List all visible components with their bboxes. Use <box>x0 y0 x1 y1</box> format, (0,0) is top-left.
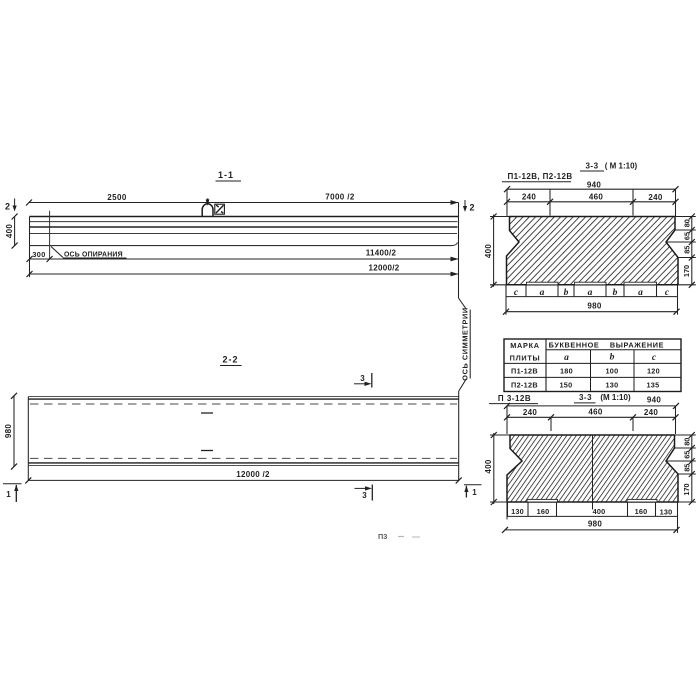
svg-text:80: 80 <box>682 219 691 227</box>
svg-text:240: 240 <box>648 193 662 202</box>
svg-text:2500: 2500 <box>107 193 127 202</box>
svg-text:160: 160 <box>537 507 550 516</box>
svg-text:2: 2 <box>5 202 10 212</box>
svg-text:a: a <box>638 288 643 298</box>
svg-text:2-2: 2-2 <box>222 355 238 365</box>
svg-text:П2-12В: П2-12В <box>511 381 538 390</box>
svg-text:180: 180 <box>560 366 573 375</box>
svg-text:100: 100 <box>605 367 618 376</box>
svg-text:12000 /2: 12000 /2 <box>236 470 270 479</box>
svg-text:1-1: 1-1 <box>218 170 234 180</box>
svg-text:a: a <box>588 288 593 298</box>
svg-text:ВЫРАЖЕНИЕ: ВЫРАЖЕНИЕ <box>610 341 664 350</box>
svg-text:85: 85 <box>682 464 691 472</box>
svg-text:1: 1 <box>6 490 11 499</box>
svg-text:2: 2 <box>469 203 474 213</box>
svg-text:3: 3 <box>362 491 367 500</box>
svg-text:80: 80 <box>682 438 691 446</box>
svg-text:11400/2: 11400/2 <box>366 249 397 258</box>
svg-text:ПЛИТЫ: ПЛИТЫ <box>510 353 541 362</box>
svg-text:a: a <box>540 288 545 298</box>
svg-text:b: b <box>610 352 615 362</box>
svg-text:b: b <box>564 288 569 298</box>
svg-text:240: 240 <box>644 408 658 417</box>
svg-text:980: 980 <box>587 302 601 311</box>
svg-text:400: 400 <box>484 244 493 258</box>
svg-text:940: 940 <box>647 396 661 405</box>
svg-text:a: a <box>564 353 569 363</box>
svg-text:МАРКА: МАРКА <box>510 341 539 350</box>
svg-text:400: 400 <box>5 224 14 238</box>
svg-text:940: 940 <box>587 181 601 190</box>
svg-text:БУКВЕННОЕ: БУКВЕННОЕ <box>549 341 600 350</box>
svg-text:(М 1:10): (М 1:10) <box>600 393 631 402</box>
svg-text:400: 400 <box>593 507 606 516</box>
svg-text:170: 170 <box>682 483 691 495</box>
svg-text:135: 135 <box>646 381 659 390</box>
svg-text:160: 160 <box>635 507 648 516</box>
svg-text:П3: П3 <box>378 532 387 541</box>
svg-text:3-3: 3-3 <box>585 162 598 171</box>
svg-text:c: c <box>652 353 657 363</box>
svg-text:П 3-12В: П 3-12В <box>498 394 531 403</box>
svg-text:460: 460 <box>589 192 603 201</box>
svg-text:120: 120 <box>647 367 660 376</box>
svg-text:980: 980 <box>4 424 13 438</box>
svg-text:65: 65 <box>682 232 691 240</box>
svg-text:130: 130 <box>605 381 618 390</box>
svg-text:12000/2: 12000/2 <box>368 264 399 273</box>
svg-text:П1-12В, П2-12В: П1-12В, П2-12В <box>507 172 572 181</box>
svg-text:240: 240 <box>522 192 536 201</box>
svg-text:460: 460 <box>588 408 602 417</box>
svg-text:ОСЬ СИММЕТРИИ: ОСЬ СИММЕТРИИ <box>460 307 469 380</box>
svg-text:1: 1 <box>472 488 477 497</box>
svg-text:400: 400 <box>484 459 493 473</box>
svg-text:170: 170 <box>682 265 691 277</box>
svg-text:240: 240 <box>523 408 537 417</box>
svg-text:980: 980 <box>588 520 602 529</box>
svg-text:7000 /2: 7000 /2 <box>325 193 355 202</box>
svg-text:3-3: 3-3 <box>579 393 592 402</box>
svg-text:300: 300 <box>32 250 45 259</box>
svg-text:ОСЬ ОПИРАНИЯ: ОСЬ ОПИРАНИЯ <box>64 251 123 258</box>
svg-text:П1-12В: П1-12В <box>511 367 538 376</box>
svg-text:85: 85 <box>682 246 691 254</box>
svg-text:130: 130 <box>511 507 524 516</box>
svg-text:150: 150 <box>559 381 572 390</box>
svg-text:b: b <box>613 288 618 298</box>
svg-text:( М 1:10): ( М 1:10) <box>605 162 638 171</box>
svg-text:65: 65 <box>682 451 691 459</box>
svg-text:130: 130 <box>660 507 673 516</box>
